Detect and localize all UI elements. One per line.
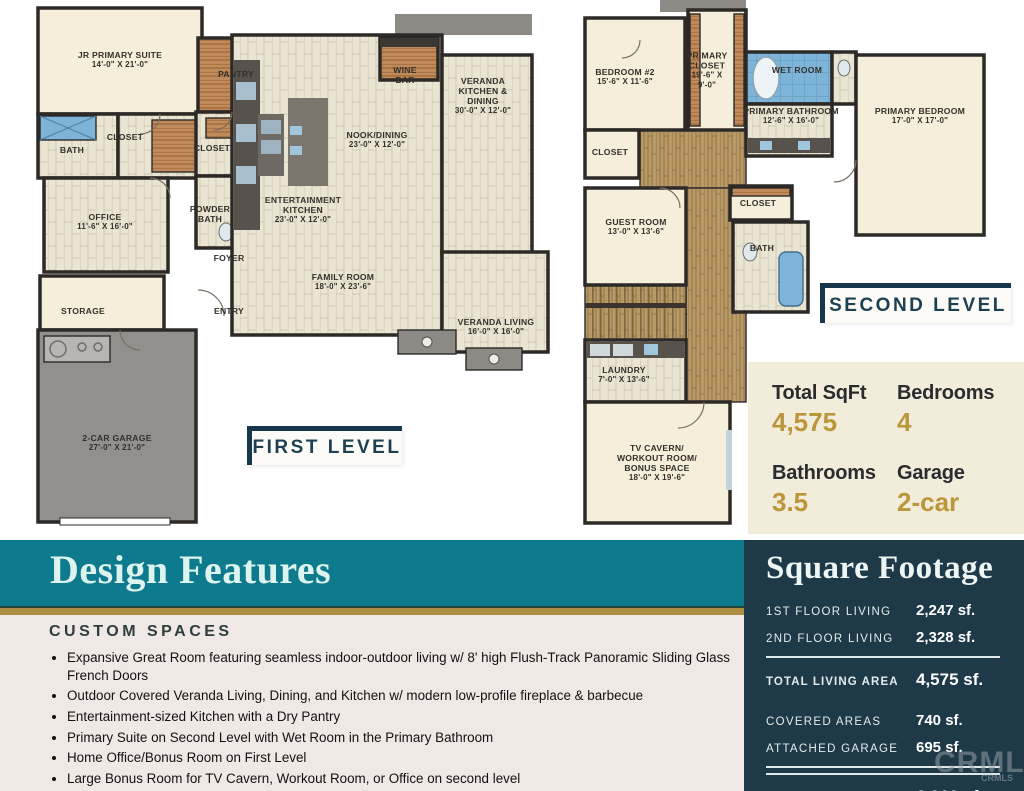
- room-shape-veranda-living: [442, 252, 548, 352]
- room-shape-guest-room: [585, 188, 686, 285]
- sf-divider: [766, 656, 1000, 658]
- first-level-badge: FIRST LEVEL: [247, 426, 402, 465]
- room-shape-veranda-kitchen: [442, 55, 532, 255]
- sf-row-covered: COVERED AREAS 740 sf.: [766, 712, 1004, 729]
- kitchen-island: [288, 98, 328, 186]
- second-level-badge: SECOND LEVEL: [820, 283, 1011, 323]
- stairs-area: [585, 285, 686, 340]
- feature-bullet: Outdoor Covered Veranda Living, Dining, …: [67, 687, 759, 705]
- stat-bathrooms: Bathrooms 3.5: [772, 462, 876, 518]
- covered-roof-band: [395, 14, 532, 35]
- room-shape-bedroom2: [585, 18, 685, 130]
- design-features-title: Design Features: [50, 546, 331, 593]
- room-shape-closet2a: [585, 130, 639, 178]
- feature-bullet-list: Expansive Great Room featuring seamless …: [48, 649, 759, 791]
- custom-spaces-heading: CUSTOM SPACES: [49, 623, 233, 641]
- stat-bedrooms: Bedrooms 4: [897, 382, 994, 438]
- hall-landing: [640, 130, 746, 188]
- square-footage-title: Square Footage: [766, 550, 1004, 586]
- room-shape-storage: [40, 276, 164, 330]
- room-shape-office: [44, 178, 168, 272]
- feature-bullet: Primary Suite on Second Level with Wet R…: [67, 729, 759, 747]
- room-shape-tv-cavern: [585, 402, 730, 523]
- room-shape-jr-suite: [38, 8, 202, 114]
- tub: [779, 252, 803, 306]
- feature-bullet: Large Bonus Room for TV Cavern, Workout …: [67, 770, 759, 788]
- sf-spacer: [766, 700, 1004, 712]
- crmls-watermark-small: CRMLS: [981, 773, 1013, 783]
- sf-row-2nd-floor: 2ND FLOOR LIVING 2,328 sf.: [766, 629, 1004, 646]
- garage-door: [60, 518, 170, 525]
- stat-total-sqft: Total SqFt 4,575: [772, 382, 866, 438]
- room-shape-primary-bedroom: [856, 55, 984, 235]
- stats-panel: Total SqFt 4,575 Bedrooms 4 Bathrooms 3.…: [748, 362, 1024, 534]
- closet-millwork: [152, 120, 198, 172]
- window-strip: [726, 430, 732, 490]
- feature-bullet: Home Office/Bonus Room on First Level: [67, 749, 759, 767]
- feature-bullet: Expansive Great Room featuring seamless …: [67, 649, 759, 684]
- sf-row-total-roof: TOTAL UNDER ROOF 6,010 sf.: [766, 787, 1004, 791]
- flyer-page: JR PRIMARY SUITE 14'-0" X 21'-0" BATH CL…: [0, 0, 1024, 791]
- garage-counter: [44, 336, 110, 362]
- stat-garage: Garage 2-car: [897, 462, 965, 518]
- sf-row-total-living: TOTAL LIVING AREA 4,575 sf.: [766, 670, 1004, 690]
- feature-bullet: Entertainment-sized Kitchen with a Dry P…: [67, 708, 759, 726]
- sf-row-1st-floor: 1ST FLOOR LIVING 2,247 sf.: [766, 602, 1004, 619]
